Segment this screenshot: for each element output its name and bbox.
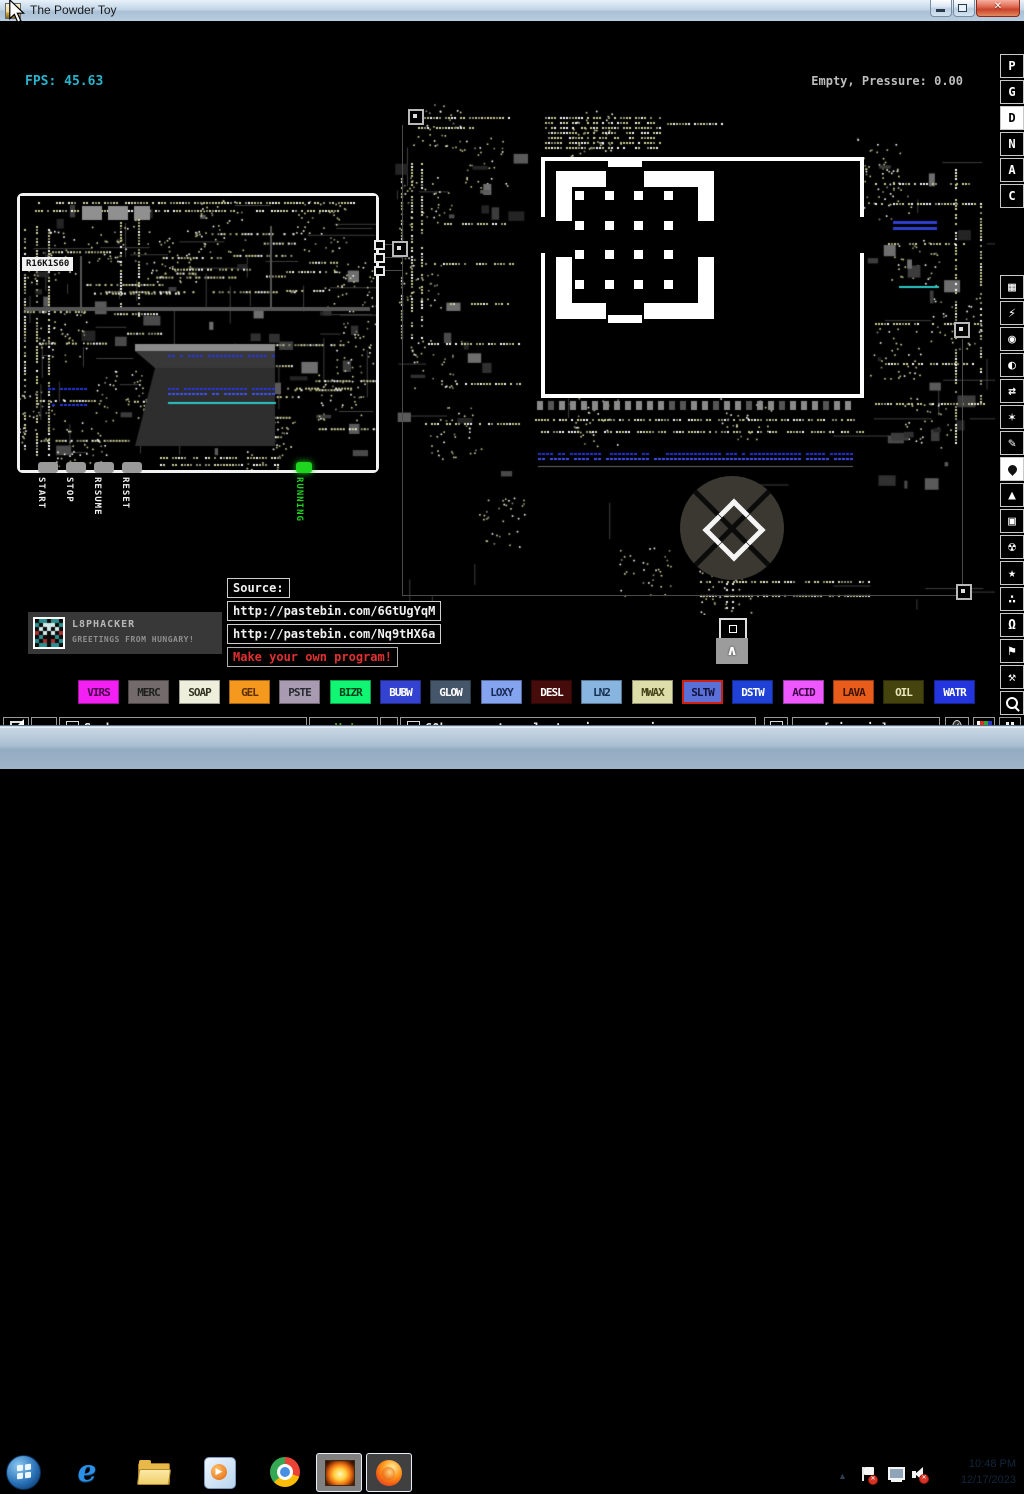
mound-icon: ▲ [1008,489,1016,502]
error-badge-icon [868,1475,878,1485]
spark-icon: ✶ [1008,411,1016,424]
wire-trace [385,270,402,271]
menu-special-button[interactable]: ★ [1000,561,1024,585]
element-watr-button[interactable]: WATR [934,680,975,704]
bus-connector [954,322,970,338]
menu-explosives-button[interactable]: ✶ [1000,405,1024,429]
pizza-frame [608,157,642,167]
board-connector-nub [374,266,385,276]
windows-flag-icon [25,1464,31,1471]
cpu-board-canvas[interactable] [20,196,376,470]
display-cell [575,250,584,259]
board-connector-nub [374,253,385,263]
display-cell [634,221,643,230]
display-cell [664,221,673,230]
running-led [296,462,312,473]
pizza-frame [644,303,714,319]
menu-electronics-button[interactable]: ⚡ [1000,301,1024,325]
menu-decoration-button[interactable]: ⚑ [1000,639,1024,663]
power-icon: ◉ [1008,333,1016,346]
display-cell [605,191,614,200]
game-display[interactable] [541,157,864,398]
windows-taskbar: e ▶ ▲ 10:48 PM 12/17/2023 [0,725,1024,769]
mini-module [719,618,747,640]
resume-pad-button[interactable] [94,462,114,473]
sidebar-letter-g[interactable]: G [1000,80,1024,104]
radiation-icon: ☢ [1008,541,1016,554]
wire-trace [385,257,402,258]
flag-icon: ⚑ [1008,645,1016,658]
firefox-icon [376,1460,402,1486]
pizza-frame [608,315,642,323]
media-player-icon[interactable]: ▶ [204,1457,236,1489]
menu-force-button[interactable]: ⇄ [1000,379,1024,403]
search-icon [1006,697,1018,709]
dpad-control[interactable] [680,476,784,580]
display-cell [575,221,584,230]
internet-explorer-icon[interactable]: e [70,1455,104,1489]
source-cta: Make your own program! [227,647,398,667]
display-cell [575,280,584,289]
display-cell [605,221,614,230]
folder-front [137,1469,171,1485]
stop-pad-button[interactable] [66,462,86,473]
flag-body [864,1467,874,1475]
windows-flag-icon [17,1473,23,1480]
walls-icon: ▦ [1008,281,1016,294]
window-titlebar[interactable]: The Powder Toy [0,0,1024,22]
pizza-frame [556,171,606,187]
display-cell [634,191,643,200]
net-base [891,1480,902,1482]
menu-liquids-button[interactable] [1000,457,1024,481]
source-title: Source: [227,578,290,598]
sidebar-letter-d[interactable]: D [1000,106,1024,130]
menu-sensors-button[interactable]: ◐ [1000,353,1024,377]
element-gel-button[interactable]: GEL [229,680,270,704]
arrows-icon: ⇄ [1008,385,1016,398]
windows-flag-icon [17,1465,23,1472]
source-link[interactable]: http://pastebin.com/6GtUgYqM [227,601,441,621]
play-icon: ▶ [211,1464,227,1480]
reset-label: RESET [120,477,130,509]
net-screen [888,1467,905,1480]
bus-connector [956,584,972,600]
chrome-icon[interactable] [270,1457,300,1487]
menu-search-button[interactable] [1000,691,1024,715]
board-connector-nub [374,240,385,250]
pencil-icon: ✎ [1008,437,1016,450]
display-cell [634,250,643,259]
element-lava-button[interactable]: LAVA [833,680,874,704]
element-glow-button[interactable]: GLOW [430,680,471,704]
element-pste-button[interactable]: PSTE [279,680,320,704]
sidebar-letter-a[interactable]: A [1000,158,1024,182]
powder-toy-icon [325,1460,355,1486]
plug-icon: ⚡ [1008,307,1016,320]
element-oil-button[interactable]: OIL [883,680,924,704]
droplet-icon [1006,463,1019,476]
running-label: RUNNING [294,477,304,522]
app-icon [5,3,21,19]
wire-trace [402,125,403,596]
display-cell [605,250,614,259]
stop-label: STOP [64,477,74,503]
element-acid-button[interactable]: ACID [783,680,824,704]
firefox-taskbar-button[interactable] [366,1453,412,1492]
display-cell [664,191,673,200]
reset-pad-button[interactable] [122,462,142,473]
avatar [33,617,65,649]
muted-badge-icon [919,1474,929,1484]
display-notch [541,217,545,253]
fps-readout: FPS: 45.63 [25,74,103,89]
cpu-board[interactable] [17,193,379,473]
element-virs-button[interactable]: VIRS [78,680,119,704]
windows-explorer-icon[interactable] [138,1460,170,1484]
element-bubw-button[interactable]: BUBW [380,680,421,704]
greeting-username: L8PHACKER [72,619,135,630]
system-tray: ▲ 10:48 PM 12/17/2023 [830,1451,1024,1494]
menu-radioactive-button[interactable]: ☢ [1000,535,1024,559]
pizza-frame [556,303,606,319]
star-icon: ★ [1008,567,1016,580]
display-cell [605,280,614,289]
clock-time: 10:48 PM [961,1456,1016,1472]
simulation-canvas-area[interactable]: FPS: 45.63 Empty, Pressure: 0.00 R16K1S6… [0,21,1024,725]
element-bizr-button[interactable]: BIZR [330,680,371,704]
restore-button[interactable] [953,0,975,17]
folder-tab [139,1460,151,1465]
chip-label: R16K1S60 [22,257,73,271]
wire-trace [402,595,963,596]
element-ln2-button[interactable]: LN2 [581,680,622,704]
windows-flag-icon [25,1472,31,1479]
globe-icon: ◐ [1008,359,1016,372]
sidebar-letter-p[interactable]: P [1000,54,1024,78]
minimize-button[interactable] [930,0,952,17]
element-mwax-button[interactable]: MWAX [632,680,673,704]
start-button[interactable] [6,1455,41,1490]
menu-gases-button[interactable]: ✎ [1000,431,1024,455]
greeting-message: GREETINGS FROM HUNGARY! [72,635,194,644]
resume-label: RESUME [92,477,102,516]
powder-toy-taskbar-button[interactable] [316,1453,362,1492]
pizza-frame [556,257,572,303]
player-stamp: ∧ [716,638,748,664]
pizza-frame [644,171,714,187]
bus-connector [392,241,408,257]
display-notch [860,217,864,253]
pizza-frame [698,257,714,303]
menu-life-button[interactable]: ∴ [1000,587,1024,611]
start-pad-button[interactable] [38,462,58,473]
start-label: START [36,477,46,509]
block-icon: ▣ [1008,515,1016,528]
display-cell [575,191,584,200]
element-soap-button[interactable]: SOAP [179,680,220,704]
greeting-box: L8PHACKER GREETINGS FROM HUNGARY! [28,612,222,654]
element-loxy-button[interactable]: LOXY [481,680,522,704]
hover-status-text: Empty, Pressure: 0.00 [811,74,963,88]
window-title: The Powder Toy [30,3,117,17]
menu-walls-button[interactable]: ▦ [1000,275,1024,299]
display-cell [664,250,673,259]
menu-powered-button[interactable]: ◉ [1000,327,1024,351]
element-desl-button[interactable]: DESL [531,680,572,704]
bus-connector [408,109,424,125]
hammer-icon: ⚒ [1008,671,1016,684]
element-sltw-button[interactable]: SLTW [682,680,723,704]
element-merc-button[interactable]: MERC [128,680,169,704]
menu-tools-button[interactable]: Ω [1000,613,1024,637]
dots-icon: ∴ [1008,593,1016,606]
source-link[interactable]: http://pastebin.com/Nq9tHX6a [227,624,441,644]
display-cell [634,280,643,289]
sidebar-letter-c[interactable]: C [1000,184,1024,208]
tray-expand-icon[interactable]: ▲ [838,1471,847,1481]
close-button[interactable] [976,0,1020,17]
tray-clock[interactable]: 10:48 PM 12/17/2023 [961,1456,1016,1488]
pizza-frame [556,187,572,221]
element-dstw-button[interactable]: DSTW [732,680,773,704]
menu-sandbox-tools-button[interactable]: ⚒ [1000,665,1024,689]
clock-date: 12/17/2023 [961,1472,1016,1488]
menu-solids-button[interactable]: ▣ [1000,509,1024,533]
wire-trace [962,339,963,596]
display-cell [664,280,673,289]
sidebar-letter-n[interactable]: N [1000,132,1024,156]
bulb-icon: Ω [1008,619,1016,632]
pizza-frame [698,187,714,221]
menu-powders-button[interactable]: ▲ [1000,483,1024,507]
